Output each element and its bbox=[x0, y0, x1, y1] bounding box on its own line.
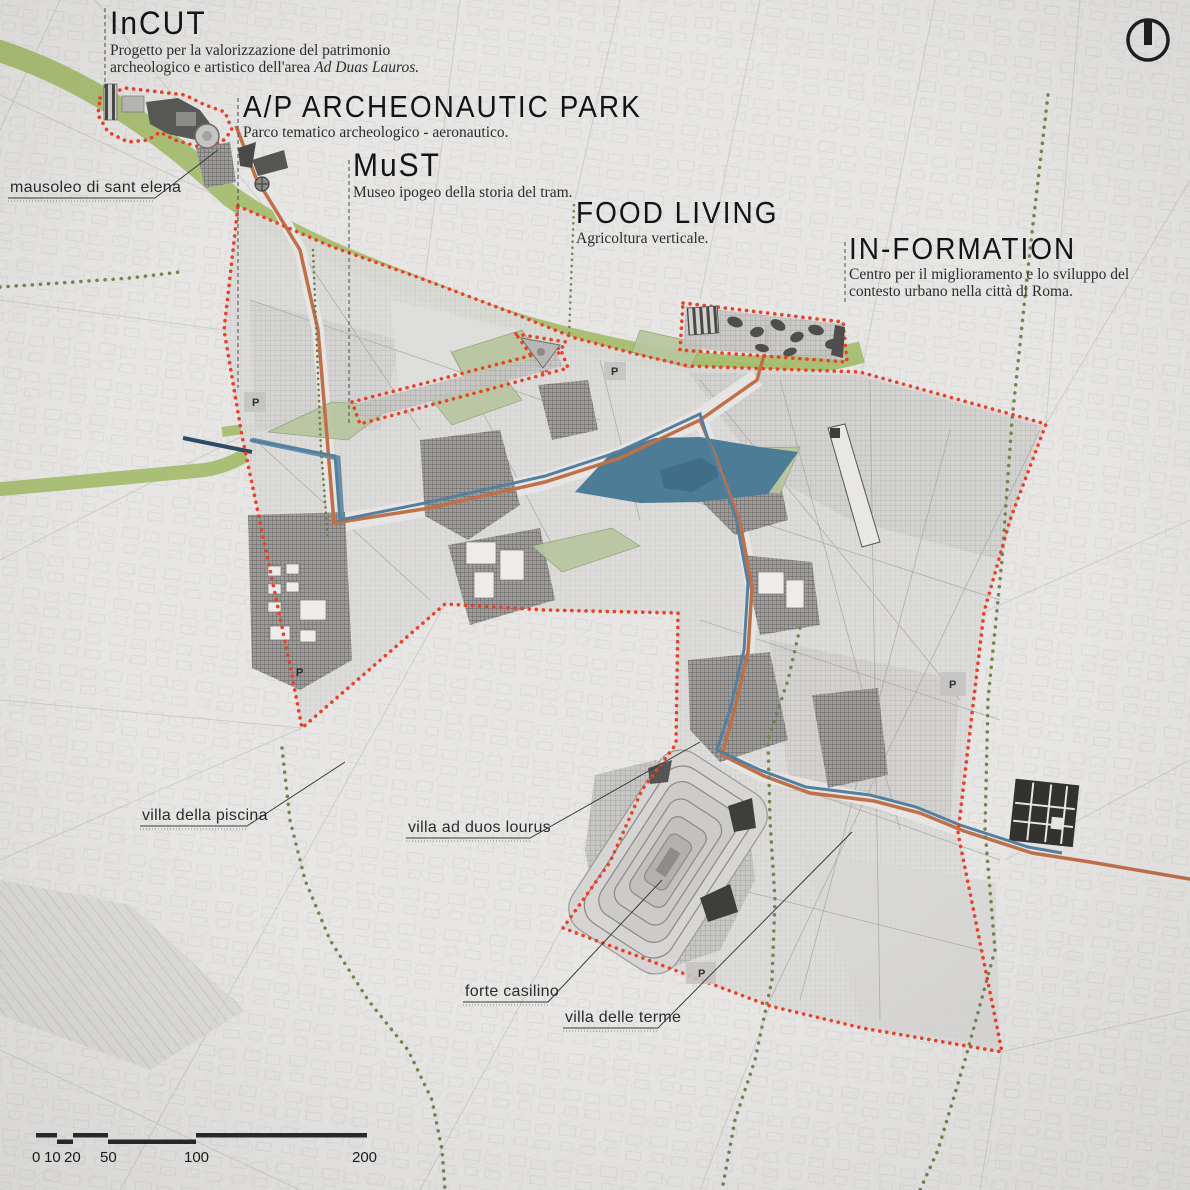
project-information: IN-FORMATION Centro per il miglioramento… bbox=[849, 232, 1149, 300]
incut-desc-line2: archeologico e artistico dell'area bbox=[110, 59, 314, 76]
project-incut-desc: Progetto per la valorizzazione del patri… bbox=[110, 42, 450, 76]
incut-desc-line1: Progetto per la valorizzazione del patri… bbox=[110, 42, 390, 59]
project-food-living-title: FOOD LIVING bbox=[576, 196, 796, 231]
project-archeonautic-desc: Parco tematico archeologico - aeronautic… bbox=[243, 124, 583, 141]
information-desc-line2: contesto urbano nella città di Roma. bbox=[849, 283, 1073, 300]
project-must: MuST Museo ipogeo della storia del tram. bbox=[353, 148, 633, 201]
project-archeonautic: A/P ARCHEONAUTIC PARK Parco tematico arc… bbox=[243, 90, 642, 141]
project-food-living-desc: Agricoltura verticale. bbox=[576, 230, 796, 247]
project-food-living: FOOD LIVING Agricoltura verticale. bbox=[576, 196, 796, 247]
project-incut-title: InCUT bbox=[110, 6, 450, 43]
masterplan-poster: P P P P P mausoleo di sant elena villa d… bbox=[0, 0, 1190, 1190]
information-desc-line1: Centro per il miglioramento e lo svilupp… bbox=[849, 266, 1129, 283]
project-incut: InCUT Progetto per la valorizzazione del… bbox=[110, 6, 450, 76]
project-information-title: IN-FORMATION bbox=[849, 232, 1149, 267]
project-archeonautic-title: A/P ARCHEONAUTIC PARK bbox=[243, 90, 642, 125]
project-must-title: MuST bbox=[353, 148, 633, 185]
project-information-desc: Centro per il miglioramento e lo svilupp… bbox=[849, 266, 1149, 300]
incut-desc-italic: Ad Duas Lauros. bbox=[314, 59, 419, 76]
